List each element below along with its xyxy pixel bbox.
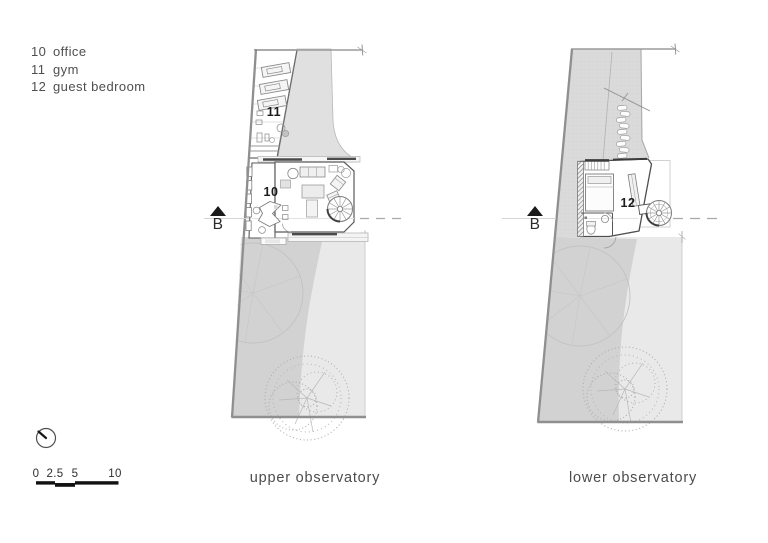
scale-tick: 0 <box>33 468 40 480</box>
legend-item: 10office <box>31 43 146 61</box>
room-label-office: 10 <box>263 185 278 199</box>
plan-lower-observatory <box>502 44 719 432</box>
section-marker-label: B <box>530 216 541 234</box>
north-indicator-icon <box>37 429 56 448</box>
section-arrow-icon <box>210 206 226 216</box>
scale-tick: 10 <box>108 468 121 480</box>
plan-upper-observatory <box>203 45 404 441</box>
legend-item: 11gym <box>31 61 146 79</box>
spiral-stair-icon <box>647 201 672 226</box>
legend-item-number: 12 <box>31 78 48 96</box>
scale-bar <box>36 481 119 487</box>
section-marker-label: B <box>213 216 224 234</box>
legend-item: 12guest bedroom <box>31 78 146 96</box>
legend-item-label: gym <box>53 62 79 77</box>
upper-terrace <box>258 157 360 163</box>
plan-caption-upper: upper observatory <box>250 470 380 486</box>
retaining-wall <box>578 162 584 237</box>
legend-item-label: office <box>53 44 87 59</box>
scale-tick: 5 <box>72 468 79 480</box>
garden-upper <box>203 231 369 441</box>
office-room <box>246 162 354 238</box>
plan-caption-lower: lower observatory <box>569 470 697 486</box>
scale-tick: 2.5 <box>47 468 64 480</box>
legend: 10office 11gym 12guest bedroom <box>31 43 146 96</box>
legend-item-label: guest bedroom <box>53 79 146 94</box>
legend-item-number: 10 <box>31 43 48 61</box>
spiral-stair-icon <box>328 197 353 222</box>
room-label-gym: 11 <box>267 105 281 119</box>
gym-equipment <box>257 63 290 111</box>
legend-item-number: 11 <box>31 61 48 79</box>
section-arrow-icon <box>527 206 543 216</box>
bed <box>586 174 614 211</box>
room-label-guest-bedroom: 12 <box>620 196 635 210</box>
entry-stairs <box>585 162 609 171</box>
